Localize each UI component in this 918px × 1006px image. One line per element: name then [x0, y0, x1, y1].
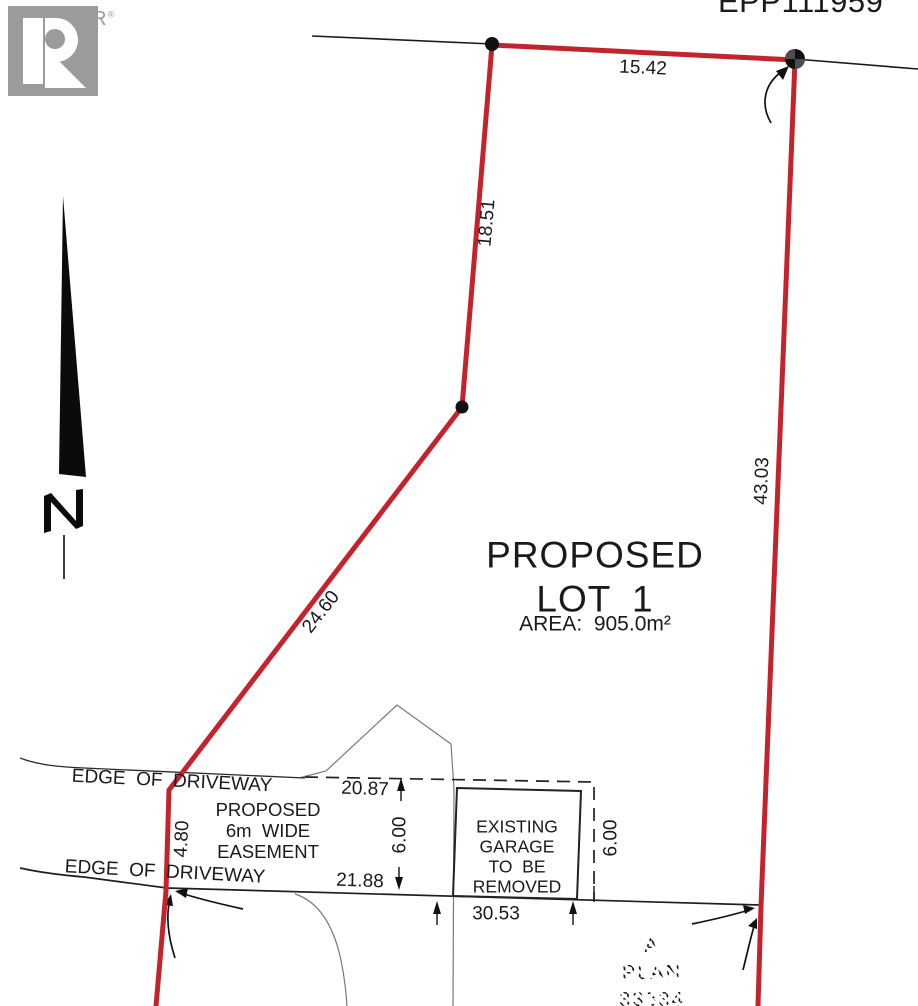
driveway-curve-path	[295, 894, 347, 1006]
adjacent-plan-label: A PLAN 33334	[606, 933, 698, 1006]
realtor-logo: R REALTOR®	[8, 6, 108, 31]
dim-easement-top-label: 20.87	[341, 779, 389, 800]
lot-boundary-red	[156, 45, 795, 1006]
adjacent-plan-line1: A	[606, 933, 698, 960]
plan-linework	[0, 0, 918, 1006]
dim-top-label: 15.42	[619, 57, 667, 78]
lot-area-label: AREA: 905.0m²	[519, 614, 671, 635]
lot-title-line1: PROPOSED	[486, 537, 704, 574]
corner-monument-northeast	[785, 49, 805, 69]
adjacent-plan-line3: 33334	[606, 987, 698, 1006]
road-line-top-right	[795, 59, 918, 69]
easement-label-line1: PROPOSED	[216, 801, 321, 820]
easement-label-line2: 6m WIDE	[226, 822, 310, 841]
north-arrow	[44, 196, 86, 579]
garage-label-line3: TO BE	[488, 858, 545, 876]
dim-lower-left-label: 4.80	[172, 820, 193, 858]
garage-label-line2: GARAGE	[480, 838, 555, 856]
dim-easement-width-left-label: 6.00	[391, 817, 410, 854]
plan-reference-label: EPP111959	[718, 0, 883, 17]
survey-plan-page: R REALTOR® EPP111959 15.42 18.51 43.03 2…	[0, 0, 918, 1006]
dim-easement-width-right-label: 6.00	[602, 820, 621, 857]
easement-label-line3: EASEMENT	[217, 843, 319, 862]
road-line-top-left	[312, 36, 492, 44]
registered-mark: ®	[108, 9, 116, 19]
corner-dot-northwest	[485, 37, 499, 51]
dim-right-label: 43.03	[752, 457, 773, 505]
realtor-logo-mark: R	[8, 6, 98, 96]
driveway-outline-path	[299, 705, 454, 1006]
adjacent-plan-line2: PLAN	[606, 960, 698, 987]
garage-label-line4: REMOVED	[473, 878, 561, 896]
corner-dot-bend	[456, 401, 469, 414]
dim-upper-left-label: 18.51	[475, 198, 498, 247]
dim-road-label: 30.53	[472, 905, 520, 924]
dim-easement-bottom-label: 21.88	[336, 871, 384, 892]
garage-label-line1: EXISTING	[476, 818, 558, 836]
